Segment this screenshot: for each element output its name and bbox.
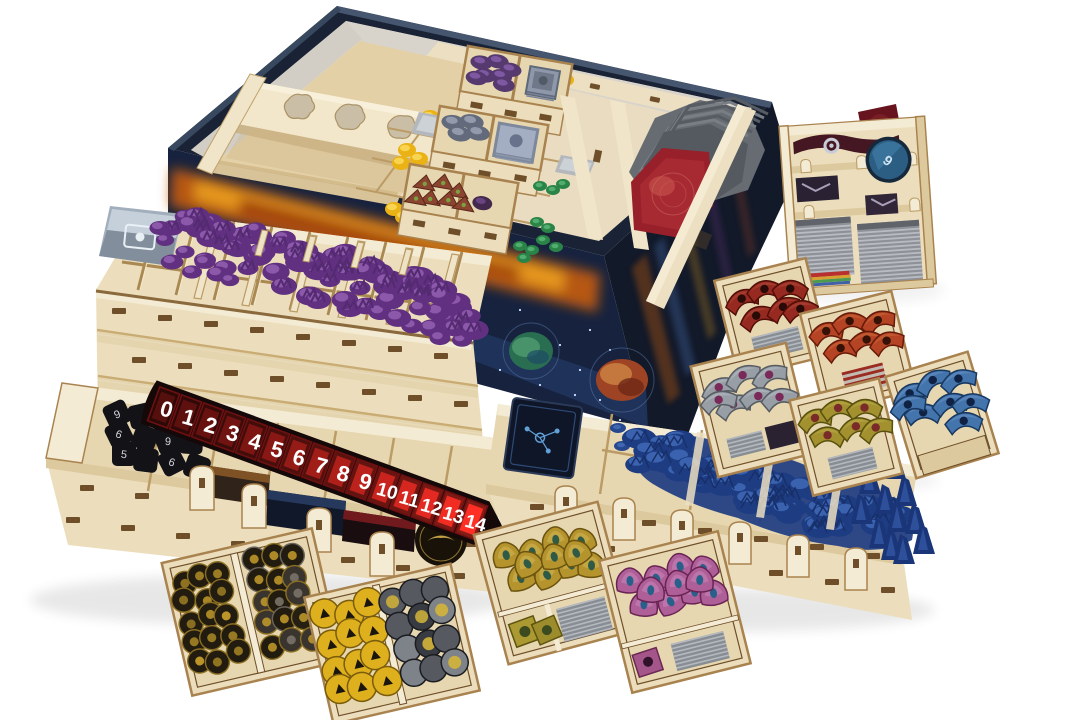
svg-text:9: 9 bbox=[165, 436, 172, 448]
